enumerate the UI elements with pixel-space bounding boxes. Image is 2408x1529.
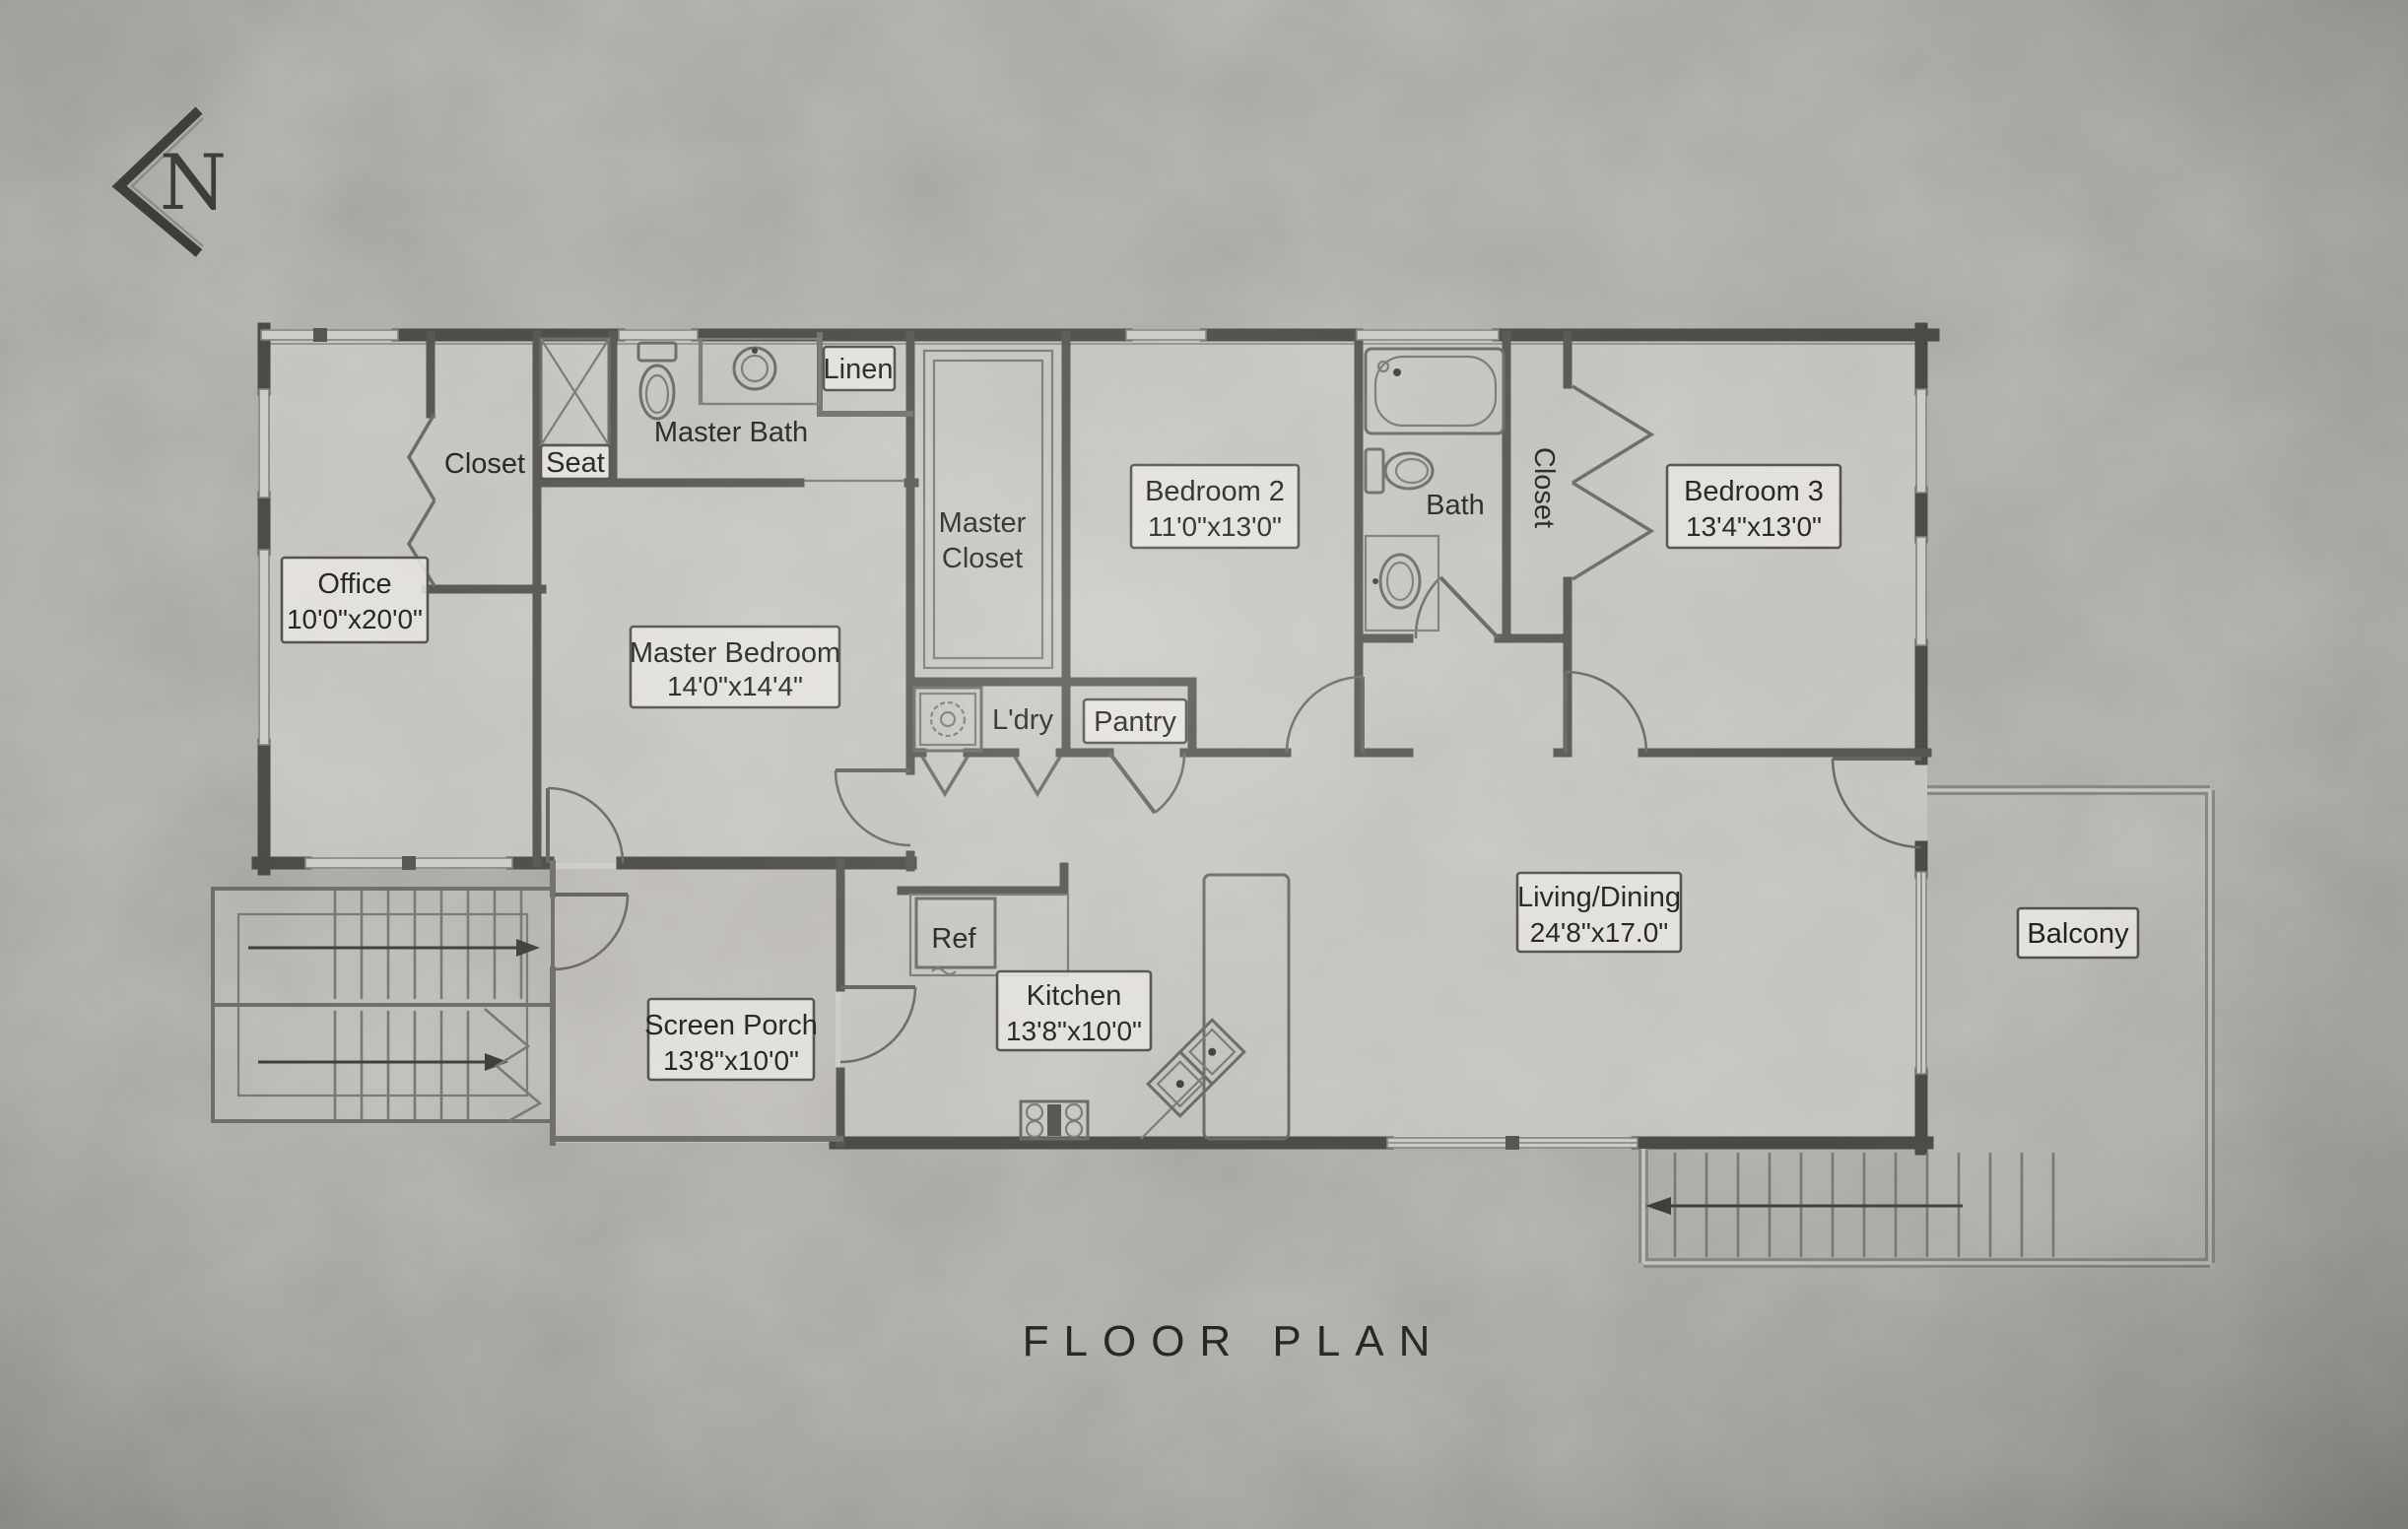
room-label-bedroom2: Bedroom 2 11'0"x13'0"	[1131, 465, 1299, 548]
svg-text:13'4"x13'0": 13'4"x13'0"	[1686, 511, 1822, 542]
svg-text:10'0"x20'0": 10'0"x20'0"	[287, 604, 423, 634]
svg-text:Bedroom 2: Bedroom 2	[1145, 476, 1285, 507]
window-shower-north	[619, 330, 698, 340]
window-living-east	[1916, 872, 1926, 1074]
room-label-master-bath: Master Bath	[654, 417, 808, 448]
window-bedroom2-north	[1126, 330, 1206, 340]
room-label-balcony: Balcony	[2018, 908, 2138, 958]
svg-text:Kitchen: Kitchen	[1027, 980, 1122, 1012]
room-label-screen-porch: Screen Porch 13'8"x10'0"	[644, 999, 818, 1080]
window-office-west-1	[259, 389, 269, 498]
svg-text:Seat: Seat	[546, 447, 605, 479]
room-label-ref: Ref	[931, 923, 976, 955]
room-label-laundry: L'dry	[992, 704, 1053, 736]
svg-text:14'0"x14'4": 14'0"x14'4"	[667, 671, 803, 701]
svg-text:Closet: Closet	[942, 543, 1023, 574]
svg-text:11'0"x13'0": 11'0"x13'0"	[1148, 511, 1282, 542]
window-southwest	[305, 856, 512, 870]
room-label-pantry: Pantry	[1084, 699, 1186, 743]
svg-text:Pantry: Pantry	[1094, 706, 1176, 738]
room-label-kitchen: Kitchen 13'8"x10'0"	[997, 971, 1151, 1050]
svg-text:Bath: Bath	[1426, 490, 1485, 521]
window-living-south	[1387, 1136, 1638, 1150]
room-label-linen: Linen	[824, 347, 895, 390]
room-label-closet-bedroom3: Closet	[1528, 447, 1560, 528]
svg-text:Living/Dining: Living/Dining	[1517, 882, 1681, 913]
svg-text:Master: Master	[939, 507, 1027, 539]
plan-title: FLOOR PLAN	[1023, 1317, 1445, 1365]
svg-text:Ref: Ref	[931, 923, 976, 955]
svg-text:24'8"x17.0": 24'8"x17.0"	[1530, 917, 1668, 948]
window-bedroom3-east-1	[1916, 389, 1926, 493]
svg-text:Balcony: Balcony	[2027, 918, 2129, 950]
window-office-north	[261, 328, 398, 342]
north-label: N	[160, 139, 227, 228]
svg-text:13'8"x10'0": 13'8"x10'0"	[663, 1045, 799, 1076]
svg-text:Master Bedroom: Master Bedroom	[630, 637, 840, 669]
room-label-closet-office: Closet	[444, 448, 525, 480]
window-bedroom3-east-2	[1916, 537, 1926, 645]
window-bath-north	[1357, 330, 1499, 340]
room-label-office: Office 10'0"x20'0"	[282, 558, 428, 642]
room-label-living-dining: Living/Dining 24'8"x17.0"	[1517, 873, 1681, 952]
svg-text:Closet: Closet	[1528, 447, 1560, 528]
window-office-west-2	[259, 550, 269, 745]
room-label-seat: Seat	[546, 447, 605, 479]
svg-text:Master Bath: Master Bath	[654, 417, 808, 448]
svg-text:Closet: Closet	[444, 448, 525, 480]
room-label-bedroom3: Bedroom 3 13'4"x13'0"	[1667, 465, 1840, 548]
floor-plan-canvas: Office 10'0"x20'0" Closet Seat Master Ba…	[0, 0, 2408, 1529]
room-label-bath: Bath	[1426, 490, 1485, 521]
floor-plan-page: Office 10'0"x20'0" Closet Seat Master Ba…	[0, 0, 2408, 1529]
room-label-master-bedroom: Master Bedroom 14'0"x14'4"	[630, 627, 840, 707]
svg-text:13'8"x10'0": 13'8"x10'0"	[1006, 1016, 1142, 1046]
svg-text:L'dry: L'dry	[992, 704, 1053, 736]
svg-text:Screen Porch: Screen Porch	[644, 1010, 818, 1041]
svg-text:Bedroom 3: Bedroom 3	[1684, 476, 1824, 507]
svg-text:Office: Office	[317, 568, 391, 600]
svg-text:Linen: Linen	[824, 354, 894, 385]
